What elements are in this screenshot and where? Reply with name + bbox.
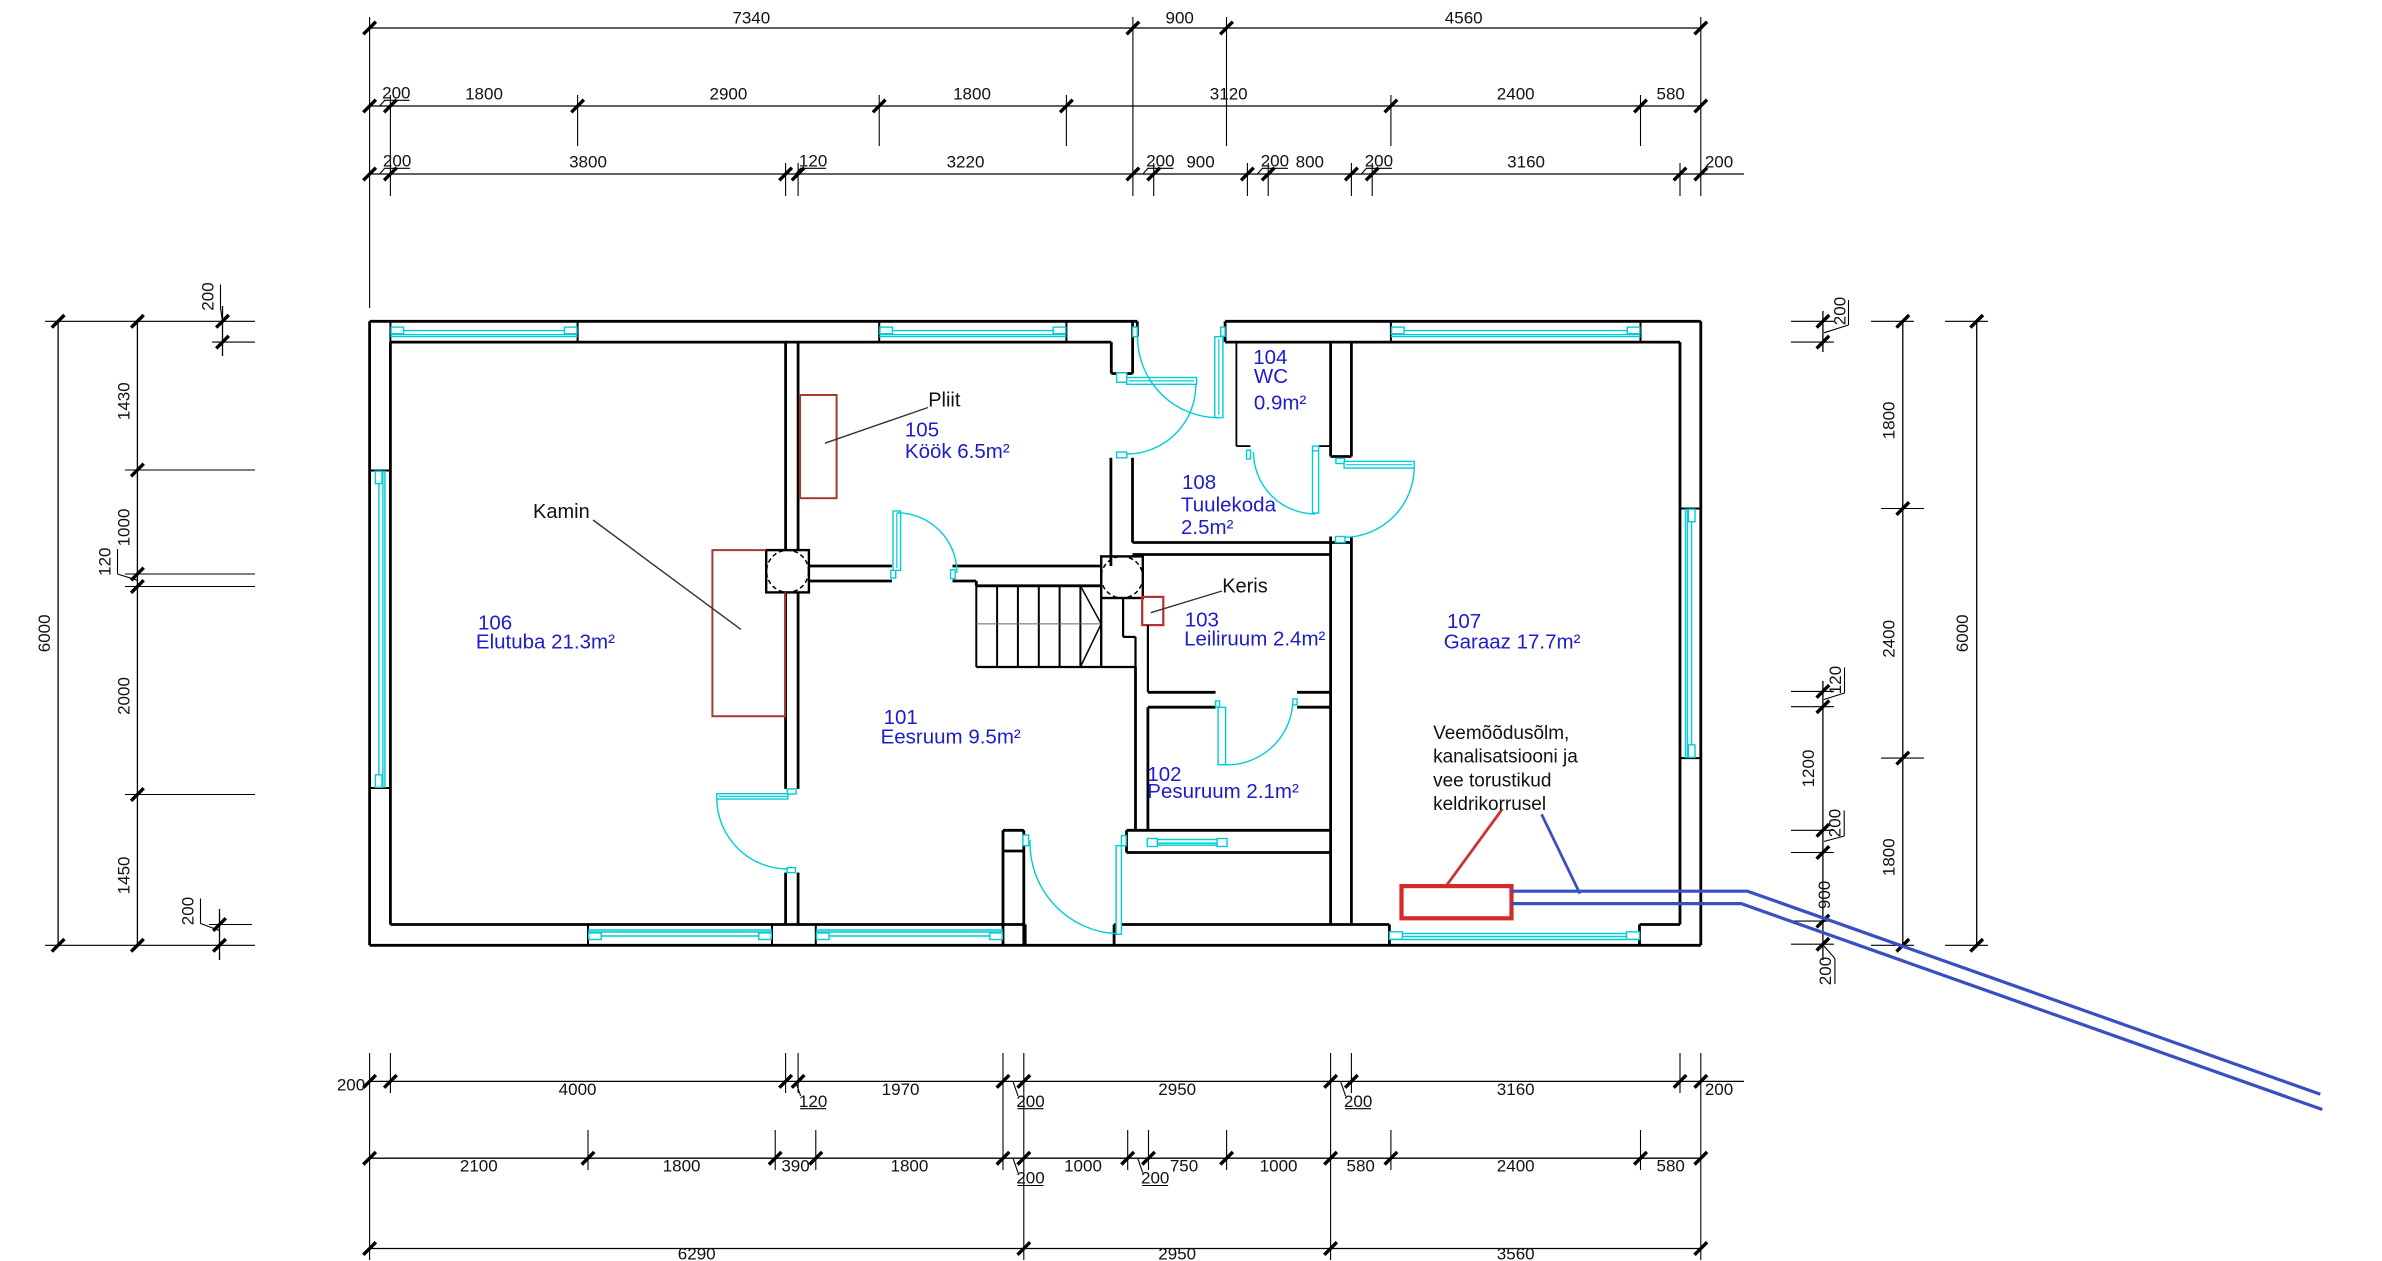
svg-text:WC: WC [1254, 365, 1288, 388]
svg-text:200: 200 [1344, 1092, 1372, 1111]
svg-text:390: 390 [781, 1157, 809, 1176]
svg-text:4560: 4560 [1445, 9, 1483, 28]
svg-text:200: 200 [1705, 153, 1733, 172]
svg-text:120: 120 [96, 548, 115, 576]
svg-text:kanalisatsiooni ja: kanalisatsiooni ja [1433, 747, 1578, 768]
svg-text:Eesruum 9.5m²: Eesruum 9.5m² [881, 726, 1021, 749]
svg-text:1800: 1800 [890, 1157, 928, 1176]
svg-text:3160: 3160 [1497, 1080, 1535, 1099]
svg-text:keldrikorrusel: keldrikorrusel [1433, 794, 1546, 815]
svg-text:1800: 1800 [663, 1157, 701, 1176]
svg-text:1000: 1000 [1260, 1157, 1298, 1176]
svg-text:6000: 6000 [1953, 614, 1972, 652]
svg-text:107: 107 [1447, 610, 1481, 633]
svg-text:Pesuruum 2.1m²: Pesuruum 2.1m² [1147, 780, 1299, 803]
svg-text:Leiliruum 2.4m²: Leiliruum 2.4m² [1184, 627, 1325, 650]
svg-text:Köök 6.5m²: Köök 6.5m² [905, 440, 1010, 463]
svg-text:Elutuba 21.3m²: Elutuba 21.3m² [476, 631, 615, 654]
svg-text:200: 200 [1016, 1092, 1044, 1111]
svg-text:2400: 2400 [1879, 620, 1898, 658]
svg-text:2000: 2000 [114, 677, 133, 715]
svg-text:Tuulekoda: Tuulekoda [1181, 494, 1277, 517]
svg-text:1800: 1800 [1879, 401, 1898, 439]
svg-text:900: 900 [1186, 153, 1214, 172]
svg-text:105: 105 [905, 419, 939, 442]
svg-text:900: 900 [1815, 881, 1834, 909]
svg-text:Veemõõdusõlm,: Veemõõdusõlm, [1433, 723, 1569, 744]
svg-text:vee torustikud: vee torustikud [1433, 770, 1551, 791]
svg-text:1000: 1000 [114, 509, 133, 547]
svg-text:Kamin: Kamin [533, 501, 590, 523]
svg-text:1970: 1970 [882, 1080, 920, 1099]
svg-text:7340: 7340 [732, 9, 770, 28]
svg-text:200: 200 [1826, 809, 1845, 837]
svg-text:2.5m²: 2.5m² [1181, 516, 1234, 539]
svg-text:750: 750 [1170, 1157, 1198, 1176]
svg-text:1800: 1800 [953, 85, 991, 104]
svg-text:3560: 3560 [1497, 1245, 1535, 1261]
svg-text:6000: 6000 [35, 614, 54, 652]
svg-text:1800: 1800 [465, 85, 503, 104]
svg-text:1800: 1800 [1879, 838, 1898, 876]
svg-text:200: 200 [1816, 957, 1835, 985]
svg-text:200: 200 [337, 1075, 365, 1094]
svg-text:3120: 3120 [1210, 85, 1248, 104]
svg-text:200: 200 [1141, 1169, 1169, 1188]
svg-text:200: 200 [179, 897, 198, 925]
svg-text:1450: 1450 [114, 856, 133, 894]
svg-text:108: 108 [1182, 471, 1216, 494]
svg-text:Pliit: Pliit [928, 390, 961, 412]
svg-text:Garaaz 17.7m²: Garaaz 17.7m² [1444, 631, 1581, 654]
svg-text:2400: 2400 [1497, 85, 1535, 104]
svg-text:6290: 6290 [678, 1245, 716, 1261]
svg-text:200: 200 [199, 282, 218, 310]
svg-text:3160: 3160 [1507, 153, 1545, 172]
svg-text:3220: 3220 [947, 153, 985, 172]
svg-text:120: 120 [1826, 666, 1845, 694]
svg-text:3800: 3800 [569, 153, 607, 172]
svg-text:900: 900 [1166, 9, 1194, 28]
svg-text:200: 200 [1831, 297, 1850, 325]
svg-text:4000: 4000 [559, 1080, 597, 1099]
svg-text:2950: 2950 [1158, 1245, 1196, 1261]
svg-text:200: 200 [1705, 1080, 1733, 1099]
svg-text:1000: 1000 [1064, 1157, 1102, 1176]
svg-text:580: 580 [1657, 1157, 1685, 1176]
svg-text:580: 580 [1657, 85, 1685, 104]
svg-text:2100: 2100 [460, 1157, 498, 1176]
svg-text:0.9m²: 0.9m² [1254, 392, 1307, 415]
svg-text:800: 800 [1296, 153, 1324, 172]
svg-text:200: 200 [1016, 1169, 1044, 1188]
svg-text:120: 120 [799, 1092, 827, 1111]
svg-text:Keris: Keris [1222, 576, 1268, 598]
svg-text:2400: 2400 [1497, 1157, 1535, 1176]
svg-text:580: 580 [1347, 1157, 1375, 1176]
svg-text:2900: 2900 [709, 85, 747, 104]
svg-text:2950: 2950 [1158, 1080, 1196, 1099]
svg-text:1200: 1200 [1799, 750, 1818, 788]
svg-text:1430: 1430 [114, 382, 133, 420]
